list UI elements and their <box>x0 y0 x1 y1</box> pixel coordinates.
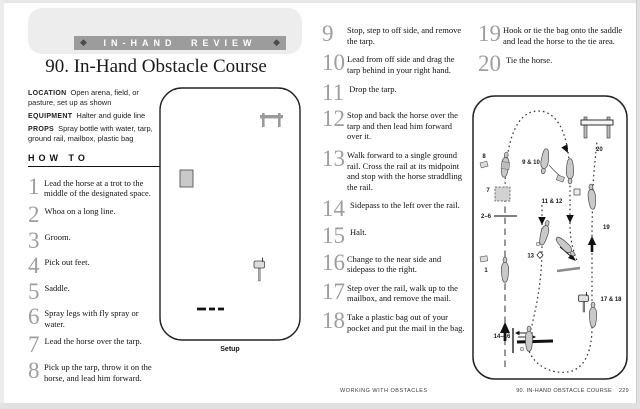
step-text: Lead from off side and drag the tarp beh… <box>347 53 468 75</box>
step-text: Take a plastic bag out of your pocket an… <box>347 311 468 333</box>
horse-figure <box>539 148 550 174</box>
banner-background: ◆ IN-HAND REVIEW ◆ <box>28 8 302 54</box>
step-item: 19Hook or tie the bag onto the saddle an… <box>478 24 632 46</box>
setup-diagram <box>159 87 301 341</box>
course-label-7: 7 <box>486 188 490 194</box>
step-text: Walk forward to a single ground rail. Cr… <box>347 149 468 193</box>
step-item: 14Sidepass to the left over the rail. <box>322 199 468 219</box>
step-number: 11 <box>322 83 344 103</box>
handler-figure <box>536 242 540 246</box>
step-number: 4 <box>28 256 40 276</box>
info-row: EQUIPMENT Halter and guide line <box>28 111 160 121</box>
step-number: 20 <box>478 54 501 74</box>
arc-arrow <box>561 144 568 153</box>
step-text: Pick out feet. <box>45 256 90 276</box>
step-number: 17 <box>322 282 342 304</box>
info-label: EQUIPMENT <box>28 113 72 120</box>
horse-figure <box>589 302 596 327</box>
step-text: Saddle. <box>45 282 70 302</box>
step-item: 20Tie the horse. <box>478 54 632 74</box>
step-number: 9 <box>322 24 342 46</box>
horse-figure <box>538 220 552 246</box>
steps-middle-column: 9Stop, step to off side, and remove the … <box>322 24 468 340</box>
step-item: 12Stop and back the horse over the tarp … <box>322 109 468 142</box>
step-text: Change to the near side and sidepass to … <box>347 253 468 275</box>
step-number: 5 <box>28 282 40 302</box>
page-edge <box>0 0 640 3</box>
horse-figure <box>554 235 577 258</box>
drag-tarp-icon <box>549 165 565 182</box>
course-label-14-16: 14–16 <box>494 334 511 340</box>
step-text: Lead the horse over the tarp. <box>45 335 142 355</box>
tarp-icon <box>180 170 193 187</box>
info-text: Halter and guide line <box>76 111 145 120</box>
step-number: 3 <box>28 231 40 251</box>
horse-figure <box>501 257 508 282</box>
step-text: Lead the horse at a trot to the middle o… <box>44 177 160 199</box>
step-item: 6Spray legs with fly spray or water. <box>28 307 160 329</box>
step-item: 17Step over the rail, walk up to the mai… <box>322 282 468 304</box>
diamond-right-icon: ◆ <box>273 39 280 48</box>
page-edge <box>0 403 640 409</box>
step-item: 5Saddle. <box>28 282 160 302</box>
left-column: LOCATION Open arena, field, or pasture, … <box>28 88 160 389</box>
info-label: PROPS <box>28 126 54 133</box>
page-edge <box>636 0 640 409</box>
course-label-19: 19 <box>603 225 610 231</box>
step-text: Stop and back the horse over the tarp an… <box>347 109 468 142</box>
step-item: 8Pick up the tarp, throw it on the horse… <box>28 361 160 383</box>
mailbox-icon <box>579 292 589 312</box>
horse-figure <box>525 326 532 351</box>
step-text: Step over the rail, walk up to the mailb… <box>347 282 468 304</box>
course-label-20: 20 <box>596 147 603 153</box>
steps-right-column: 19Hook or tie the bag onto the saddle an… <box>478 24 632 82</box>
step-item: 4Pick out feet. <box>28 256 160 276</box>
footer-chapter: 90. IN-HAND OBSTACLE COURSE229 <box>516 388 629 394</box>
handler-figure <box>520 347 524 351</box>
step-item: 2Whoa on a long line. <box>28 205 160 225</box>
step-item: 11Drop the tarp. <box>322 83 468 103</box>
step-item: 18Take a plastic bag out of your pocket … <box>322 311 468 333</box>
steps-left-column: 1Lead the horse at a trot to the middle … <box>28 177 160 383</box>
how-to-heading: HOW TO <box>28 153 160 167</box>
step-number: 8 <box>28 361 39 383</box>
step-item: 9Stop, step to off side, and remove the … <box>322 24 468 46</box>
down-arrow <box>566 215 574 223</box>
step-text: Drop the tarp. <box>349 83 396 103</box>
step-item: 13Walk forward to a single ground rail. … <box>322 149 468 193</box>
step-item: 1Lead the horse at a trot to the middle … <box>28 177 160 199</box>
tarp-on-horse <box>501 162 510 170</box>
step-number: 7 <box>28 335 40 355</box>
step-item: 7Lead the horse over the tarp. <box>28 335 160 355</box>
footer-section-label: WORKING WITH OBSTACLES <box>340 388 428 394</box>
course-label-11-12: 11 & 12 <box>542 199 563 205</box>
footer-chapter-label: 90. IN-HAND OBSTACLE COURSE <box>516 388 612 394</box>
info-row: PROPS Spray bottle with water, tarp, gro… <box>28 124 160 144</box>
course-label-2-6: 2–6 <box>481 214 492 220</box>
step-number: 19 <box>478 24 498 46</box>
book-page: ◆ IN-HAND REVIEW ◆ 90. In-Hand Obstacle … <box>0 0 640 409</box>
step-number: 1 <box>28 177 39 199</box>
step-number: 6 <box>28 307 39 329</box>
horse-figure <box>587 184 596 210</box>
step-number: 15 <box>322 226 345 246</box>
course-diagram: 8 7 2–6 1 9 & 10 11 & 12 13 14–16 17 & 1… <box>472 95 628 380</box>
down-arrow <box>538 217 546 225</box>
course-path-right <box>592 141 597 227</box>
info-row: LOCATION Open arena, field, or pasture, … <box>28 88 160 108</box>
step-number: 14 <box>322 199 345 219</box>
step-text: Whoa on a long line. <box>45 205 116 225</box>
page-title: 90. In-Hand Obstacle Course <box>0 56 312 78</box>
step-number: 18 <box>322 311 342 333</box>
step-number: 12 <box>322 109 342 142</box>
step-text: Groom. <box>45 231 71 251</box>
info-label: LOCATION <box>28 90 66 97</box>
section-banner: ◆ IN-HAND REVIEW ◆ <box>74 36 286 50</box>
ground-rail-icon <box>517 341 553 342</box>
course-label-8: 8 <box>482 154 486 160</box>
step-text: Tie the horse. <box>506 54 552 74</box>
step-text: Pick up the tarp, throw it on the horse,… <box>44 361 160 383</box>
step-item: 16Change to the near side and sidepass t… <box>322 253 468 275</box>
up-arrow <box>588 236 596 252</box>
tarp-icon <box>480 256 488 262</box>
step-text: Hook or tie the bag onto the saddle and … <box>503 24 632 46</box>
setup-caption: Setup <box>159 346 301 353</box>
hitching-rail-icon <box>260 113 283 127</box>
course-label-1: 1 <box>484 268 488 274</box>
step-text: Sidepass to the left over the rail. <box>350 199 460 219</box>
step-item: 15Halt. <box>322 226 468 246</box>
step-text: Halt. <box>350 226 367 246</box>
step-item: 10Lead from off side and drag the tarp b… <box>322 53 468 75</box>
step-text: Spray legs with fly spray or water. <box>44 307 160 329</box>
footer-page-number: 229 <box>619 388 629 394</box>
mailbox-icon <box>254 258 265 282</box>
tie-rail-icon <box>581 117 613 138</box>
banner-label: IN-HAND REVIEW <box>104 38 257 48</box>
step-item: 3Groom. <box>28 231 160 251</box>
step-number: 2 <box>28 205 40 225</box>
horse-figure <box>566 159 573 184</box>
tarp-icon <box>495 187 510 201</box>
diamond-left-icon: ◆ <box>80 39 87 48</box>
ground-rail-icon <box>557 268 580 271</box>
step-text: Stop, step to off side, and remove the t… <box>347 24 468 46</box>
course-path-11-12 <box>528 205 542 341</box>
bag-icon <box>574 189 580 195</box>
step-number: 10 <box>322 53 342 75</box>
course-label-9-10: 9 & 10 <box>522 160 540 166</box>
course-label-17-18: 17 & 18 <box>600 297 622 303</box>
step-number: 16 <box>322 253 342 275</box>
course-label-13: 13 <box>527 254 534 260</box>
tarp-icon <box>480 161 488 168</box>
step-number: 13 <box>322 149 342 193</box>
